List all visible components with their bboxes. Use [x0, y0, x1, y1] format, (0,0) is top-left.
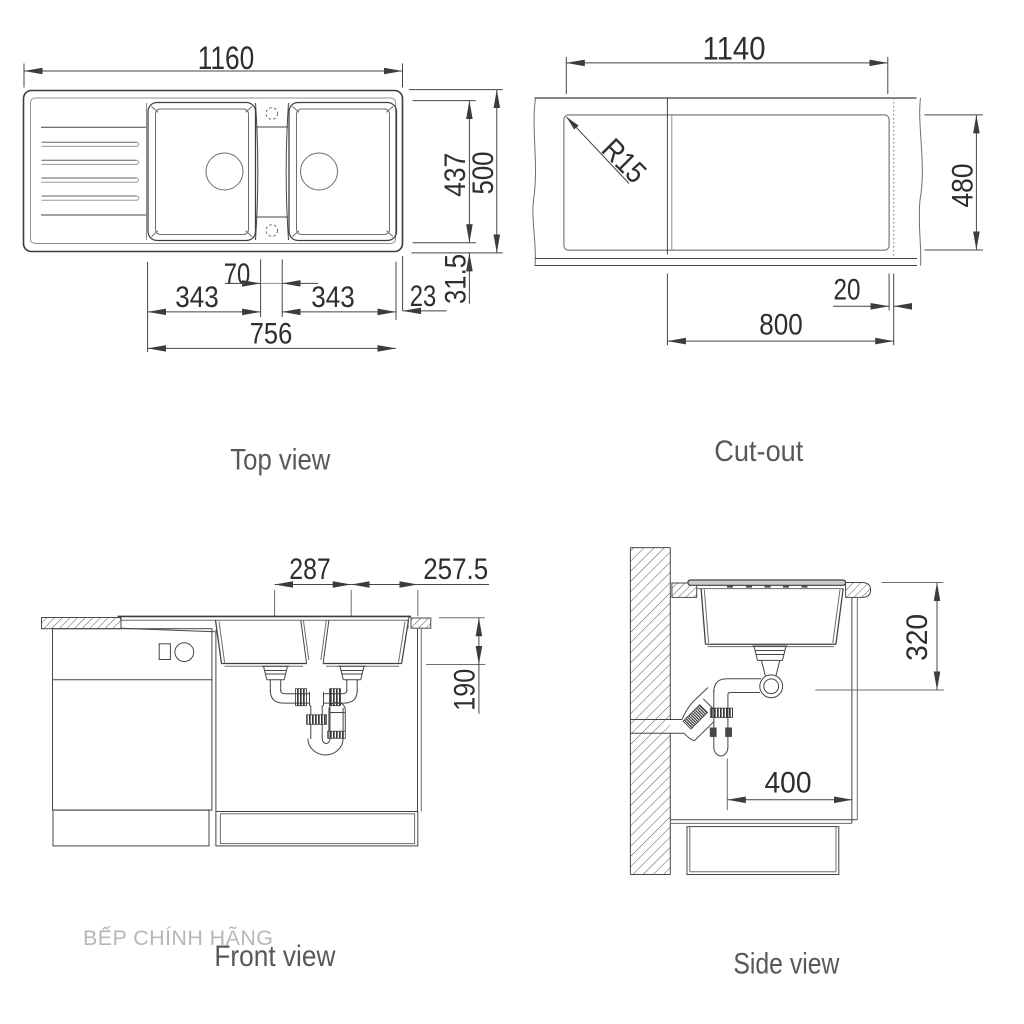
- svg-text:23: 23: [410, 280, 437, 313]
- svg-text:70: 70: [224, 258, 251, 291]
- svg-text:Top view: Top view: [230, 443, 330, 476]
- svg-text:400: 400: [765, 767, 812, 800]
- svg-text:31.5: 31.5: [439, 254, 472, 304]
- svg-text:190: 190: [449, 669, 482, 711]
- svg-text:Cut-out: Cut-out: [714, 435, 804, 468]
- svg-text:756: 756: [250, 318, 293, 351]
- svg-text:500: 500: [467, 152, 500, 195]
- svg-text:343: 343: [175, 281, 219, 314]
- svg-text:Side view: Side view: [733, 948, 839, 981]
- svg-text:480: 480: [947, 164, 980, 208]
- svg-text:800: 800: [759, 309, 803, 342]
- svg-text:257.5: 257.5: [423, 553, 488, 586]
- svg-text:Front view: Front view: [214, 940, 335, 973]
- svg-text:343: 343: [311, 281, 355, 314]
- svg-text:1140: 1140: [703, 30, 766, 66]
- svg-text:20: 20: [834, 274, 861, 307]
- svg-text:320: 320: [901, 614, 934, 661]
- svg-text:287: 287: [289, 553, 331, 586]
